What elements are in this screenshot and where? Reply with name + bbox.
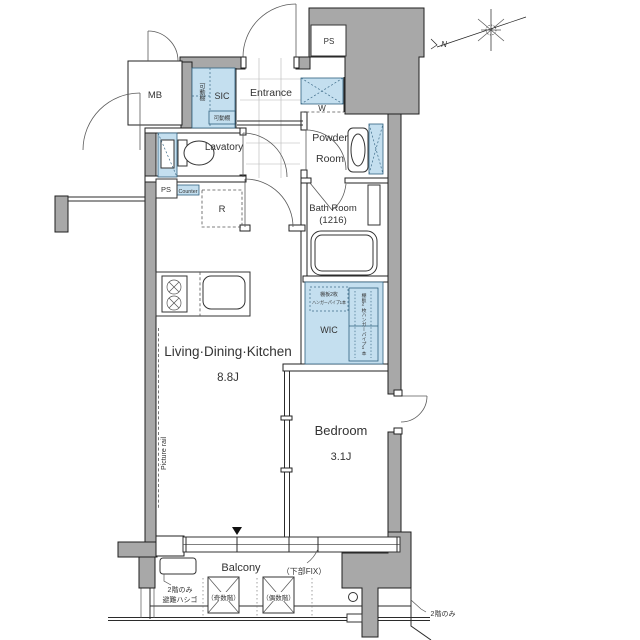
wash-basin — [348, 128, 368, 172]
wall-bottom-left-stub — [139, 557, 155, 588]
label-counter: Counter — [179, 189, 198, 195]
lavatory-door — [243, 133, 287, 177]
label-bedroom-size: 3.1J — [331, 451, 352, 463]
label-ldk-size: 8.8J — [217, 372, 239, 384]
label-ps-top: PS — [324, 37, 335, 46]
label-bedroom: Bedroom — [315, 423, 368, 438]
label-hatch-1: 2階のみ — [168, 585, 193, 594]
bathtub — [311, 185, 380, 275]
label-entrance: Entrance — [250, 87, 292, 99]
label-picture-rail: Picture rail — [161, 436, 168, 470]
bath-counter — [368, 185, 380, 225]
bedroom-side-door — [394, 390, 427, 434]
label-even-floor: （偶数階） — [262, 593, 295, 602]
wall-right-lower — [388, 432, 401, 532]
drain — [349, 593, 358, 602]
compass-north-label: N — [441, 40, 447, 49]
escape-hatch — [160, 558, 196, 574]
floor-plan-drawing: N MB PS PS SIC 可動棚 可動棚 Entrance W Powder… — [0, 0, 640, 640]
label-fix-note: （下部FIX） — [282, 566, 326, 576]
wall-mb-sic-divider — [181, 62, 192, 128]
entrance-door — [241, 4, 299, 68]
window-marker-triangle — [232, 527, 242, 535]
label-balcony: Balcony — [221, 562, 261, 574]
entrance-tile-grid — [237, 58, 303, 178]
label-sic-shelf-vertical: 可動棚 — [198, 83, 205, 102]
mb-door — [148, 31, 178, 61]
label-odd-floor: （奇数階） — [207, 593, 240, 602]
floor-plan-page: N MB PS PS SIC 可動棚 可動棚 Entrance W Powder… — [0, 0, 640, 640]
label-bath-1: Bath Room — [309, 203, 357, 214]
kitchen-counter — [156, 272, 250, 316]
label-wic: WIC — [320, 325, 338, 335]
label-lavatory: Lavatory — [205, 142, 243, 153]
label-powder-1: Powder — [312, 132, 348, 144]
kitchen-sink — [203, 276, 245, 309]
label-wic-note-2: ハンガーパイプ1本 — [312, 299, 346, 306]
label-powder-2: Room — [316, 153, 344, 165]
label-ldk: Living·Dining·Kitchen — [164, 344, 292, 359]
wall-right-upper — [388, 114, 401, 394]
label-bath-2: (1216) — [319, 215, 346, 226]
label-hatch-2: 避難ハシゴ — [163, 595, 198, 604]
wall-bottom-left-block — [118, 542, 157, 557]
label-fridge: R — [219, 204, 226, 215]
label-wic-note-vertical: 棚板2枚ハンガーパイプ1本 — [361, 292, 366, 357]
compass: N — [431, 9, 526, 51]
label-mb: MB — [148, 90, 162, 101]
ldk-door — [245, 179, 293, 227]
wall-neighbor-stub — [55, 196, 68, 232]
label-sic-shelf-small: 可動棚 — [214, 114, 231, 122]
label-second-floor-note: 2階のみ — [431, 609, 456, 618]
wall-left — [145, 130, 156, 542]
label-wic-note-1: 棚板2枚 — [320, 291, 338, 298]
label-ps-left: PS — [161, 185, 171, 194]
label-washer: W — [318, 104, 326, 113]
label-sic: SIC — [214, 91, 230, 101]
